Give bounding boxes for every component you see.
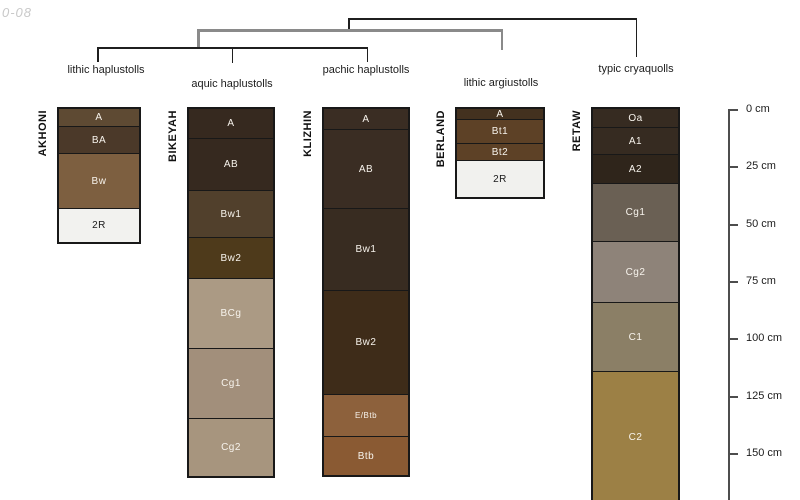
horizon-label: Bw2 — [221, 253, 242, 264]
horizon-label: Bt1 — [492, 126, 509, 137]
horizon-layer: A2 — [593, 154, 678, 183]
depth-tick-label: 75 cm — [746, 275, 776, 287]
horizon-layer: C1 — [593, 302, 678, 371]
series-label-retaw: RETAW — [570, 110, 584, 151]
horizon-label: A1 — [629, 136, 642, 147]
horizon-label: A2 — [629, 164, 642, 175]
horizon-layer: Bw2 — [324, 290, 408, 394]
horizon-label: Bw2 — [356, 337, 377, 348]
profile-column-retaw: OaA1A2Cg1Cg2C1C2 — [591, 107, 680, 500]
tree-edge — [501, 29, 504, 50]
horizon-label: A — [496, 109, 503, 120]
series-label-akhoni: AKHONI — [36, 110, 50, 156]
depth-tick-label: 100 cm — [746, 332, 782, 344]
horizon-layer: Bw1 — [189, 190, 273, 237]
depth-tick — [728, 166, 738, 168]
depth-tick — [728, 109, 738, 111]
classification-label: lithic haplustolls — [26, 64, 186, 76]
profile-column-klizhin: AABBw1Bw2E/BtbBtb — [322, 107, 410, 477]
horizon-label: Bw — [92, 176, 107, 187]
tree-edge — [636, 18, 638, 57]
tree-edge — [97, 47, 99, 62]
horizon-label: Cg2 — [221, 442, 241, 453]
horizon-label: 2R — [92, 220, 106, 231]
horizon-layer: Bw1 — [324, 208, 408, 290]
depth-tick-label: 0 cm — [746, 103, 770, 115]
horizon-layer: BA — [59, 126, 139, 153]
horizon-layer: A — [189, 109, 273, 138]
tree-edge — [197, 29, 200, 48]
tree-edge — [232, 47, 234, 63]
horizon-label: Cg1 — [626, 207, 646, 218]
depth-tick — [728, 338, 738, 340]
horizon-layer: A — [457, 109, 543, 119]
horizon-layer: 2R — [59, 208, 139, 242]
depth-tick — [728, 396, 738, 398]
depth-tick-label: 50 cm — [746, 218, 776, 230]
tree-edge — [197, 29, 503, 32]
depth-tick — [728, 281, 738, 283]
profile-column-akhoni: ABABw2R — [57, 107, 141, 244]
depth-tick-label: 125 cm — [746, 390, 782, 402]
horizon-label: Bw1 — [221, 209, 242, 220]
horizon-layer: A — [59, 109, 139, 126]
series-label-berland: BERLAND — [434, 110, 448, 167]
depth-tick — [728, 453, 738, 455]
watermark-text: 0-08 — [2, 5, 32, 20]
horizon-layer: Cg2 — [593, 241, 678, 302]
horizon-label: BCg — [221, 308, 242, 319]
horizon-label: C1 — [629, 332, 643, 343]
horizon-layer: BCg — [189, 278, 273, 348]
depth-axis-line — [728, 109, 730, 500]
horizon-layer: Bw2 — [189, 237, 273, 278]
horizon-label: C2 — [629, 432, 643, 443]
horizon-layer: A1 — [593, 127, 678, 154]
classification-label: typic cryaquolls — [556, 63, 716, 75]
classification-label: aquic haplustolls — [152, 78, 312, 90]
horizon-layer: Oa — [593, 109, 678, 127]
horizon-label: 2R — [493, 174, 507, 185]
horizon-layer: 2R — [457, 160, 543, 197]
horizon-layer: Bw — [59, 153, 139, 208]
horizon-layer: Bt2 — [457, 143, 543, 160]
horizon-label: A — [362, 114, 369, 125]
horizon-label: E/Btb — [355, 411, 377, 420]
soil-profile-figure: 0-08 lithic haplustollsaquic haplustolls… — [0, 0, 800, 500]
depth-tick — [728, 224, 738, 226]
horizon-label: Bt2 — [492, 147, 509, 158]
classification-label: pachic haplustolls — [286, 64, 446, 76]
horizon-label: A — [95, 112, 102, 123]
horizon-label: AB — [359, 164, 373, 175]
horizon-layer: E/Btb — [324, 394, 408, 436]
horizon-layer: AB — [324, 129, 408, 208]
depth-tick-label: 150 cm — [746, 447, 782, 459]
series-label-klizhin: KLIZHIN — [301, 110, 315, 157]
horizon-label: A — [227, 118, 234, 129]
horizon-label: AB — [224, 159, 238, 170]
profile-column-bikeyah: AABBw1Bw2BCgCg1Cg2 — [187, 107, 275, 478]
series-label-bikeyah: BIKEYAH — [166, 110, 180, 162]
horizon-label: Bw1 — [356, 244, 377, 255]
horizon-layer: C2 — [593, 371, 678, 500]
horizon-layer: Bt1 — [457, 119, 543, 143]
horizon-label: Oa — [628, 113, 642, 124]
horizon-layer: Cg1 — [189, 348, 273, 418]
profile-column-berland: ABt1Bt22R — [455, 107, 545, 199]
horizon-layer: AB — [189, 138, 273, 190]
horizon-label: BA — [92, 135, 106, 146]
horizon-layer: Btb — [324, 436, 408, 475]
classification-label: lithic argiustolls — [421, 77, 581, 89]
depth-tick-label: 25 cm — [746, 160, 776, 172]
horizon-label: Btb — [358, 451, 375, 462]
tree-edge — [367, 47, 369, 62]
horizon-layer: Cg2 — [189, 418, 273, 476]
horizon-layer: Cg1 — [593, 183, 678, 241]
tree-edge — [348, 18, 637, 20]
horizon-label: Cg1 — [221, 378, 241, 389]
horizon-label: Cg2 — [626, 267, 646, 278]
horizon-layer: A — [324, 109, 408, 129]
